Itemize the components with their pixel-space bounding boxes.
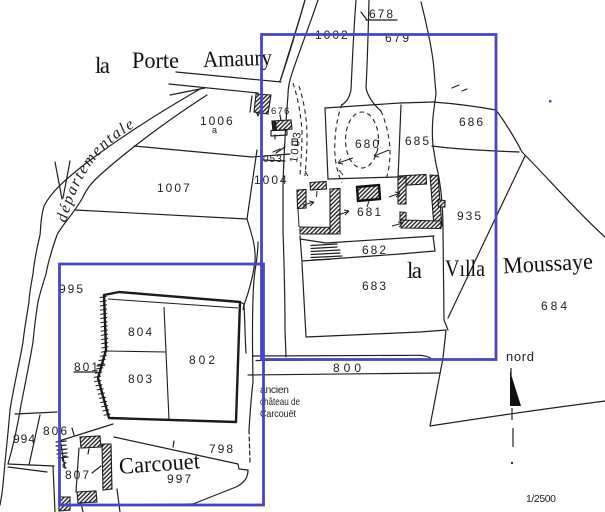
svg-text:995: 995 (59, 282, 85, 296)
svg-text:798: 798 (209, 442, 235, 456)
svg-text:départementale: départementale (53, 115, 138, 224)
svg-text:807: 807 (65, 468, 91, 482)
svg-text:la: la (407, 258, 422, 283)
svg-text:685: 685 (405, 134, 431, 148)
svg-text:803: 803 (128, 372, 154, 386)
svg-text:804: 804 (128, 325, 154, 339)
svg-text:nord: nord (506, 349, 534, 364)
svg-text:800: 800 (333, 361, 365, 375)
svg-text:994: 994 (13, 432, 36, 446)
svg-text:935: 935 (457, 209, 483, 223)
svg-text:Carcouët: Carcouët (260, 408, 296, 420)
svg-text:Moussaye: Moussaye (502, 249, 593, 279)
svg-text:684: 684 (541, 299, 570, 313)
svg-text:997: 997 (167, 472, 193, 486)
svg-text:686: 686 (459, 115, 485, 129)
svg-text:a: a (212, 125, 219, 135)
svg-text:château de: château de (260, 396, 300, 408)
svg-text:806: 806 (43, 424, 69, 438)
svg-text:676: 676 (271, 106, 290, 117)
svg-text:681: 681 (357, 205, 383, 219)
svg-text:053: 053 (263, 154, 283, 165)
svg-text:1004: 1004 (254, 173, 289, 187)
svg-text:802: 802 (189, 353, 218, 367)
svg-text:1/2500: 1/2500 (526, 493, 556, 505)
svg-text:la: la (95, 53, 110, 78)
svg-text:683: 683 (362, 279, 388, 293)
svg-text:1007: 1007 (157, 181, 192, 195)
svg-text:801: 801 (74, 360, 100, 374)
svg-text:678: 678 (369, 7, 395, 21)
svg-text:682: 682 (362, 243, 388, 257)
svg-text:680: 680 (355, 137, 381, 151)
svg-text:Vılla: Vılla (445, 256, 485, 281)
svg-text:Porte: Porte (132, 48, 179, 73)
